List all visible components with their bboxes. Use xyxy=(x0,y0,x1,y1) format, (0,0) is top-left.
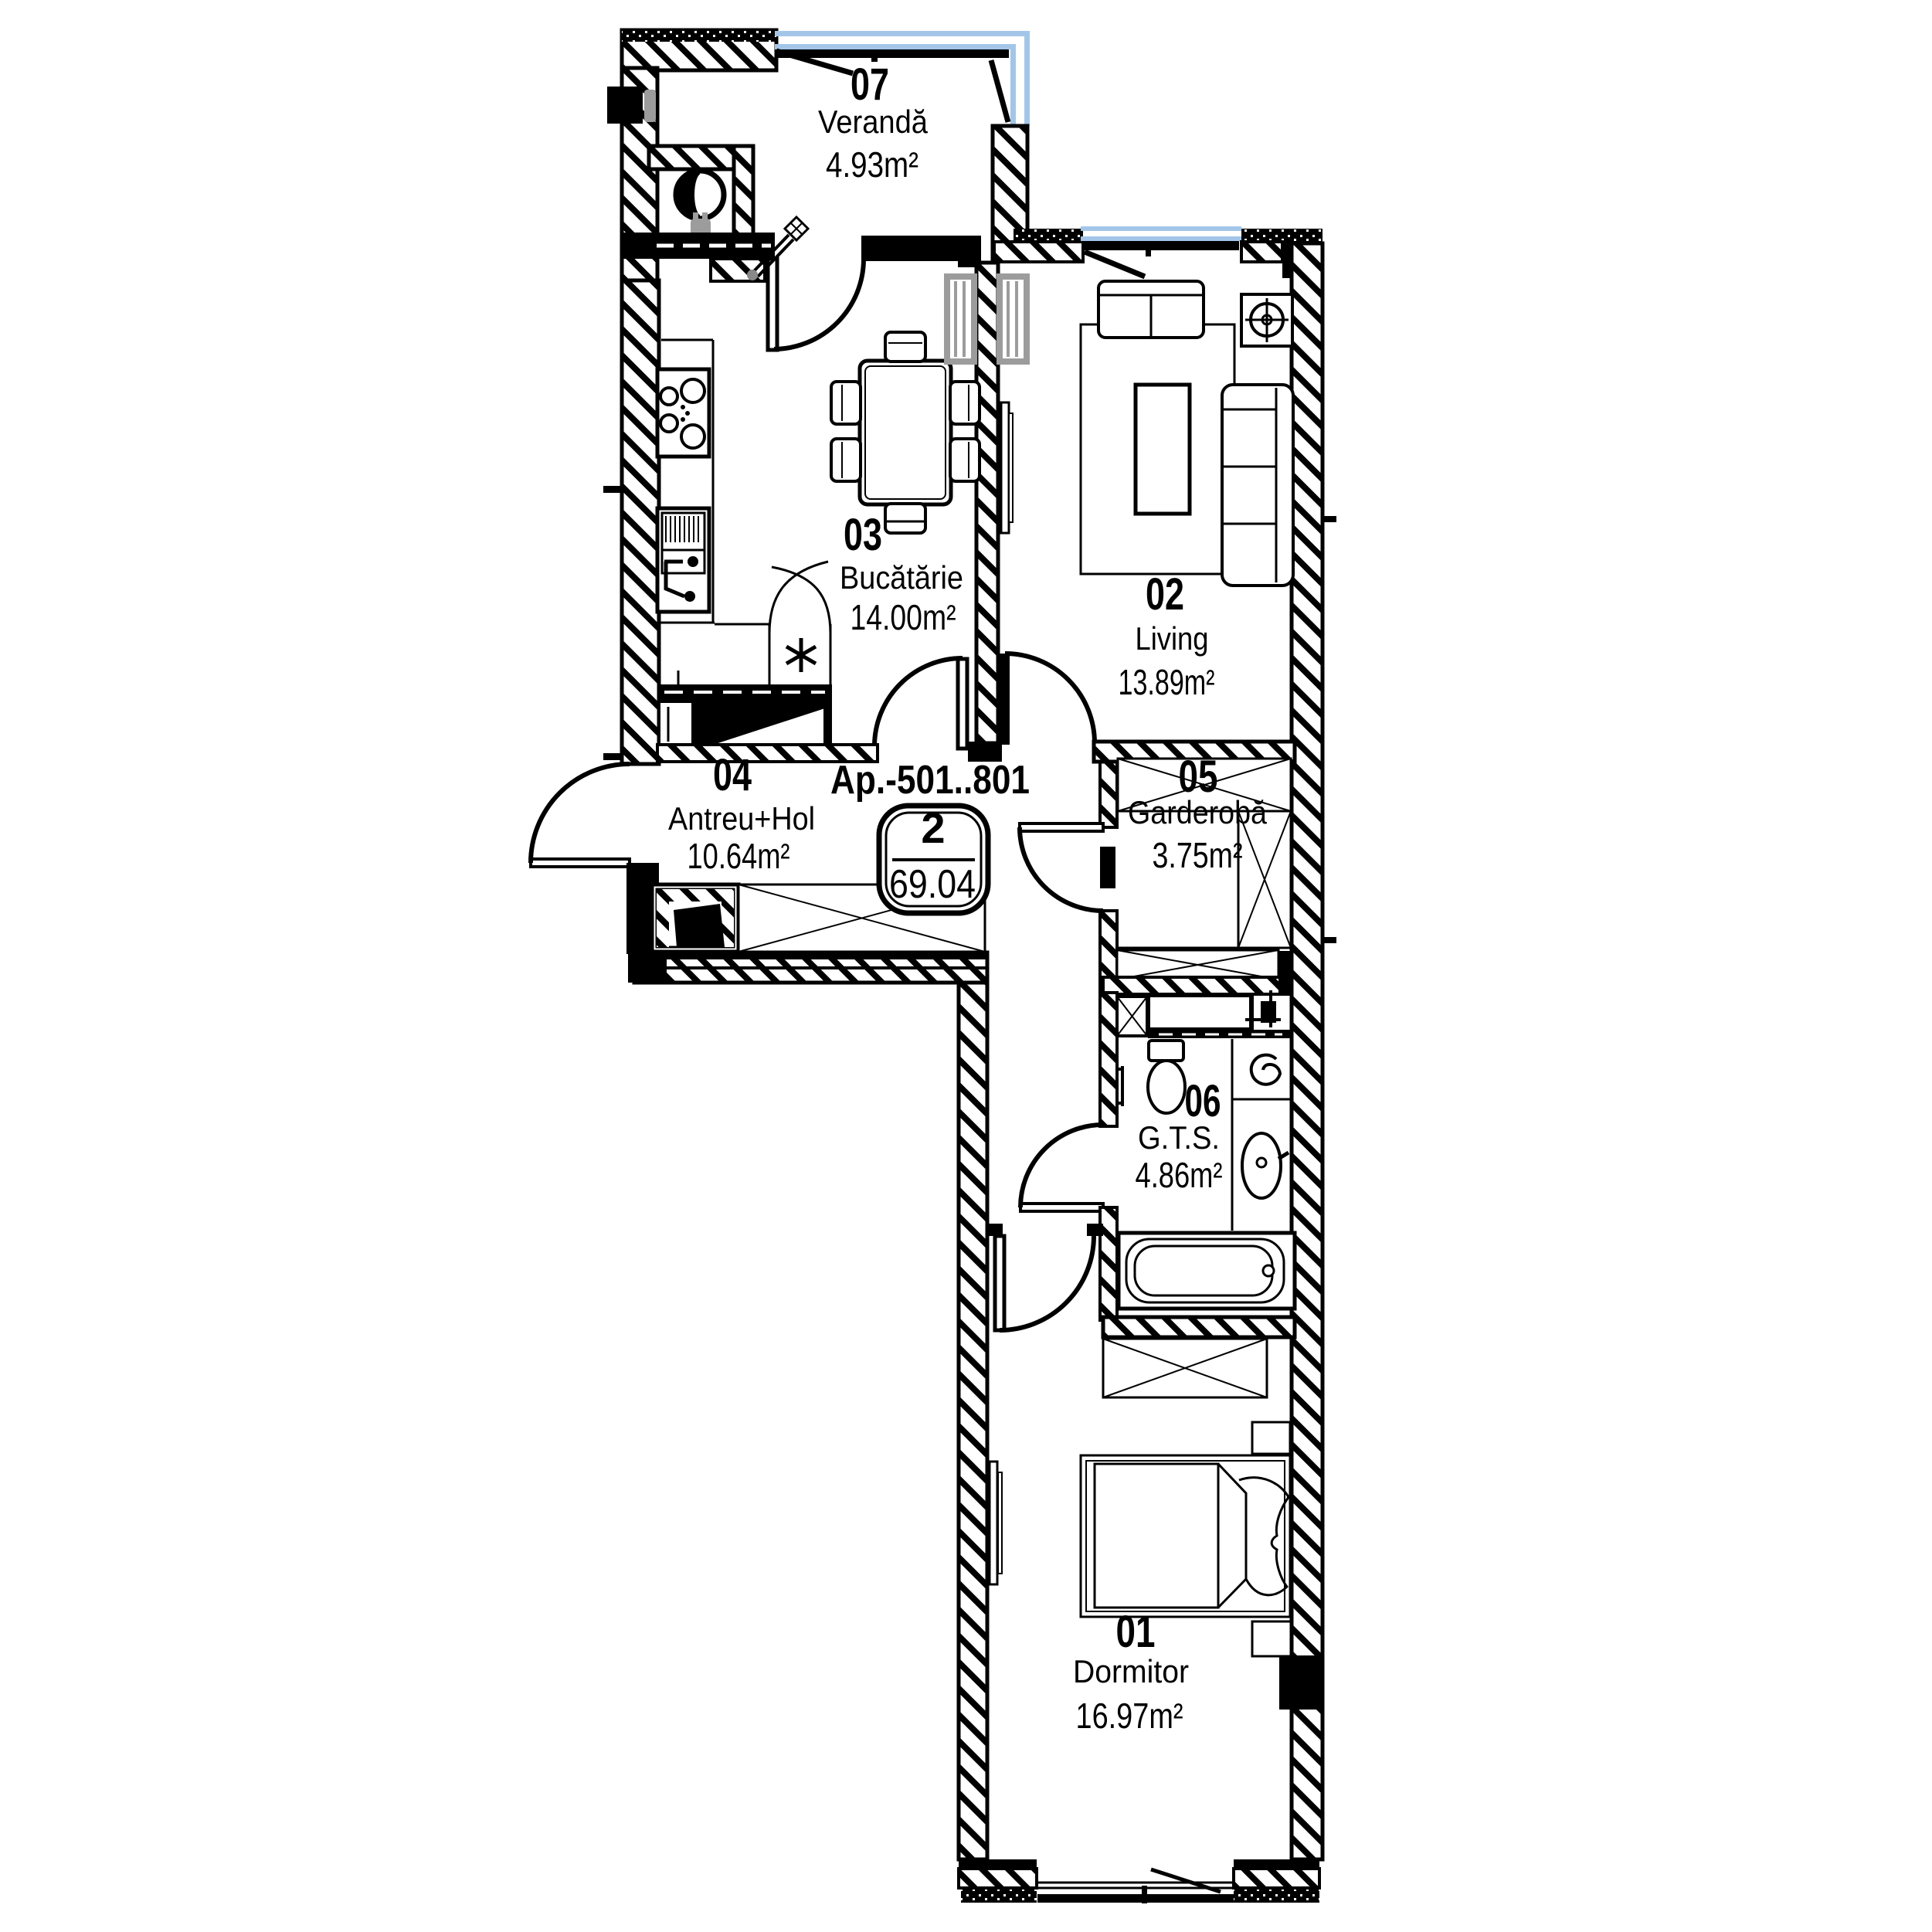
svg-text:13.89m²: 13.89m² xyxy=(1119,662,1215,702)
svg-text:Verandă: Verandă xyxy=(818,104,929,140)
svg-text:69.04: 69.04 xyxy=(889,862,976,907)
svg-text:02: 02 xyxy=(1146,569,1184,620)
svg-text:G.T.S.: G.T.S. xyxy=(1138,1119,1220,1156)
svg-text:Antreu+Hol: Antreu+Hol xyxy=(668,800,815,837)
svg-text:10.64m²: 10.64m² xyxy=(688,836,790,876)
svg-text:Ap.-501..801: Ap.-501..801 xyxy=(830,758,1030,803)
svg-text:4.93m²: 4.93m² xyxy=(826,144,918,185)
svg-text:01: 01 xyxy=(1116,1607,1156,1657)
svg-text:14.00m²: 14.00m² xyxy=(851,597,956,637)
svg-text:16.97m²: 16.97m² xyxy=(1076,1696,1183,1736)
svg-text:04: 04 xyxy=(713,750,752,800)
svg-text:Garderobă: Garderobă xyxy=(1128,794,1268,830)
svg-text:07: 07 xyxy=(851,59,889,110)
svg-text:4.86m²: 4.86m² xyxy=(1136,1155,1223,1195)
svg-text:Dormitor: Dormitor xyxy=(1073,1653,1189,1689)
svg-text:3.75m²: 3.75m² xyxy=(1153,835,1243,875)
svg-text:Living: Living xyxy=(1136,620,1209,657)
svg-text:Bucătărie: Bucătărie xyxy=(840,559,963,596)
svg-text:2: 2 xyxy=(921,803,945,852)
svg-text:03: 03 xyxy=(844,510,882,560)
